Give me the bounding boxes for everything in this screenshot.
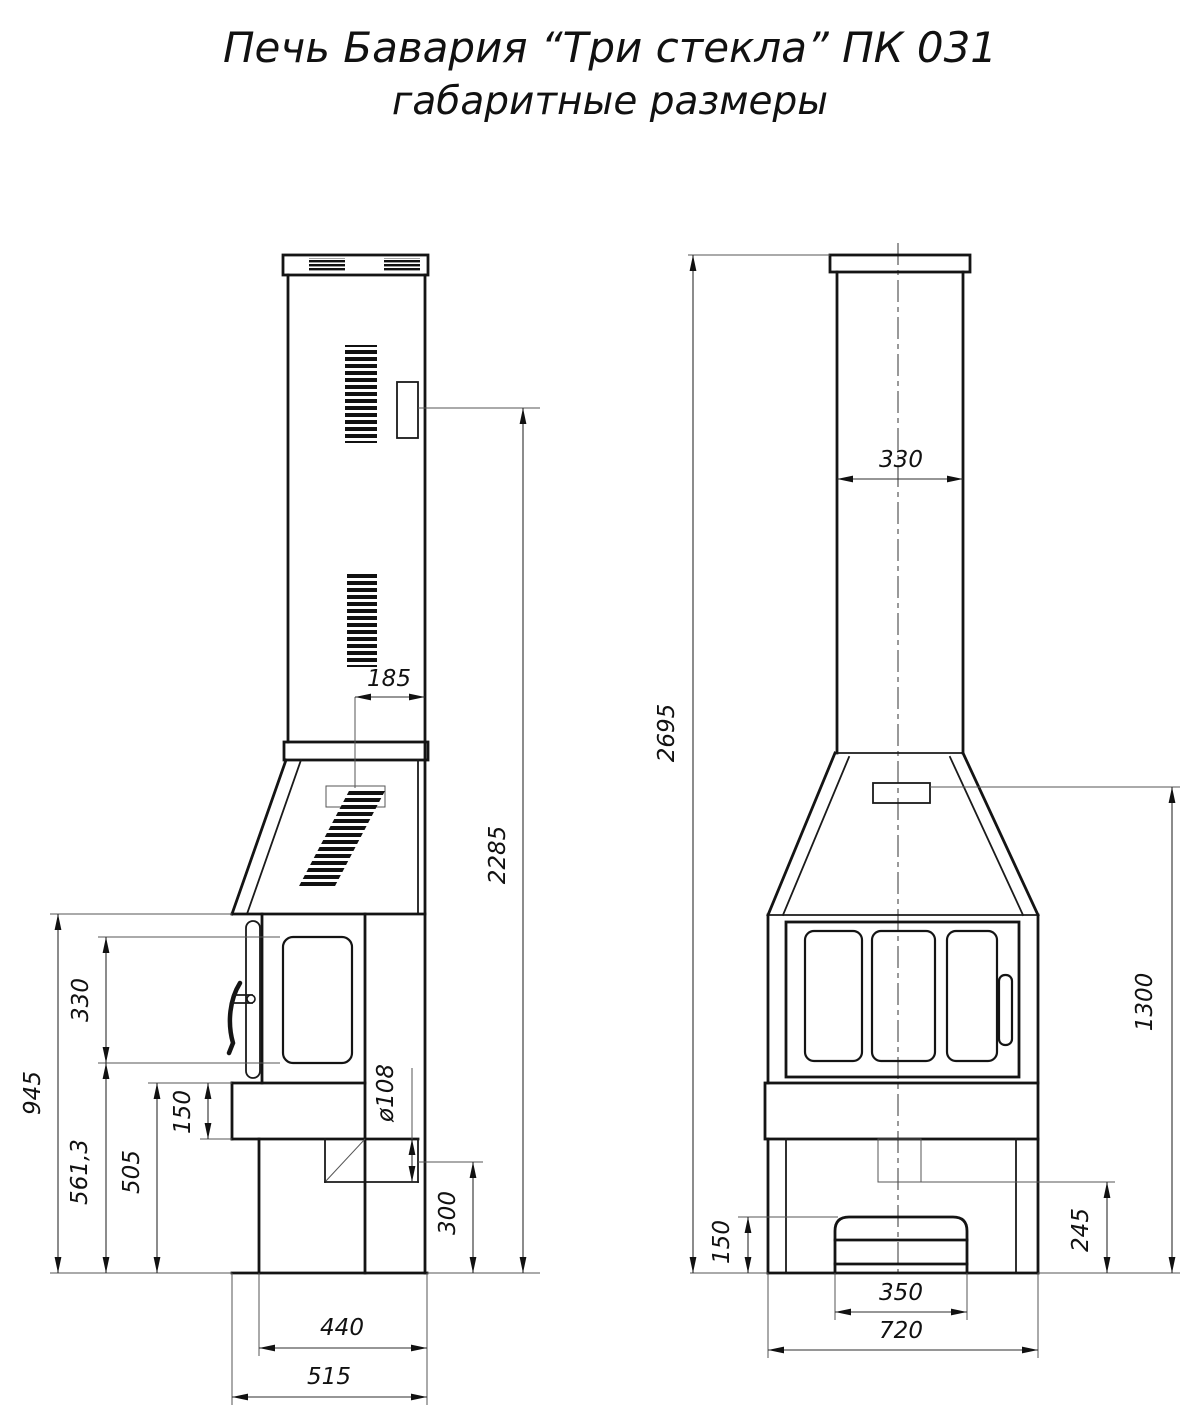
front-outlet-stub [878, 1139, 921, 1182]
dim-text-150-front: 150 [709, 1220, 735, 1264]
dim-text-300: 300 [435, 1191, 461, 1235]
cap-vent-grille-right [384, 258, 420, 272]
front-hood [768, 753, 1038, 915]
dim-text-150-side: 150 [170, 1090, 196, 1134]
dim-text-330-side: 330 [68, 978, 94, 1022]
front-glass-right [947, 931, 997, 1061]
technical-drawing: Печь Бавария “Три стекла” ПК 031 габарит… [0, 0, 1204, 1418]
front-chimney-cap [830, 255, 970, 272]
door-handle [229, 983, 255, 1053]
side-flange-band [284, 742, 428, 760]
dim-text-1300: 1300 [1132, 973, 1158, 1032]
dim-front-drawer-height: 150 [709, 1217, 748, 1273]
dim-side-damper-height: 2285 [485, 408, 523, 1273]
side-damper-plate [397, 382, 418, 438]
dim-text-515: 515 [307, 1364, 351, 1390]
front-door-frame [786, 922, 1019, 1077]
front-glass-left [805, 931, 862, 1061]
side-extension-lines [50, 408, 540, 1405]
side-pedestal [232, 1139, 427, 1273]
dim-text-505: 505 [119, 1150, 145, 1194]
front-shelf-band [765, 1083, 1038, 1139]
drawing-title: Печь Бавария “Три стекла” ПК 031 габарит… [223, 23, 997, 124]
dim-side-firebox-top-height: 945 [20, 914, 58, 1273]
dim-side-door-bottom-height: 561,3 [67, 1063, 106, 1273]
casing-vent-grille-lower [347, 572, 377, 667]
side-chimney-cap [283, 255, 428, 275]
dim-text-330-front: 330 [879, 447, 923, 473]
dim-front-damper-height: 1300 [1132, 787, 1172, 1273]
dim-front-overall-width: 720 [768, 1318, 1038, 1350]
dim-side-shelf-top-height: 505 [119, 1083, 157, 1273]
dim-side-outlet-diameter: ø108 [373, 1064, 412, 1182]
front-firebox [768, 915, 1038, 1083]
dim-side-overall-depth: 515 [232, 1364, 427, 1397]
front-view: 330 2695 1300 245 150 350 720 [654, 243, 1180, 1358]
title-line-1: Печь Бавария “Три стекла” ПК 031 [223, 23, 997, 72]
dim-text-2695: 2695 [654, 704, 680, 763]
front-damper-plate [873, 783, 930, 803]
dim-front-overall-height: 2695 [654, 255, 693, 1273]
dim-side-base-depth: 440 [259, 1315, 427, 1348]
front-base [768, 1139, 1038, 1273]
dim-side-vent-offset: 185 [355, 666, 425, 697]
title-line-2: габаритные размеры [392, 79, 828, 124]
dim-text-2285: 2285 [485, 826, 511, 885]
side-glass [283, 937, 352, 1063]
front-glass-center [872, 931, 935, 1061]
dim-front-drawer-width: 350 [835, 1280, 967, 1312]
dim-text-945: 945 [20, 1071, 46, 1115]
casing-vent-grille-upper [345, 345, 377, 443]
dim-text-720: 720 [879, 1318, 923, 1344]
dim-text-d108: ø108 [373, 1064, 399, 1123]
hood-vent-grille [298, 789, 386, 888]
drawing-sheet: Печь Бавария “Три стекла” ПК 031 габарит… [0, 0, 1204, 1418]
front-extension-lines [688, 255, 1180, 1358]
dim-side-outlet-center-height: 300 [435, 1162, 473, 1273]
dim-front-outlet-bottom-height: 245 [1068, 1182, 1107, 1273]
side-view: 185 2285 945 330 561,3 505 150 ø108 [20, 255, 540, 1405]
front-chimney [830, 255, 970, 753]
dim-side-door-glass-height: 330 [68, 937, 106, 1063]
dim-text-245: 245 [1068, 1208, 1094, 1252]
dim-text-350: 350 [879, 1280, 923, 1306]
cap-vent-grille-left [309, 258, 345, 272]
dim-text-185: 185 [367, 666, 411, 692]
dim-text-561-3: 561,3 [67, 1139, 93, 1205]
dim-front-pipe-width: 330 [837, 447, 963, 479]
dim-side-shelf-band-height: 150 [170, 1083, 208, 1139]
dim-text-440: 440 [320, 1315, 364, 1341]
front-door-handle [999, 975, 1012, 1045]
